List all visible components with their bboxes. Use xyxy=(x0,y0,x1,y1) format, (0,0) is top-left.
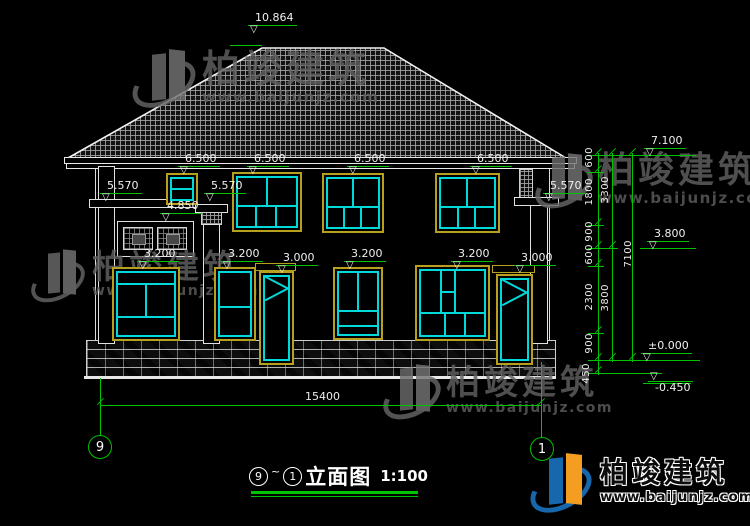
watermark-site-text: www.baijunjz.com xyxy=(202,88,379,106)
level-marker-f1: 3.200 ▽ xyxy=(344,248,386,270)
dim-line xyxy=(588,172,604,173)
dim-line xyxy=(598,153,599,375)
level-marker-icon: ▽ xyxy=(472,167,480,175)
door xyxy=(496,274,533,365)
watermark-logo-icon xyxy=(138,48,194,108)
watermark-logo-icon xyxy=(388,363,438,419)
dim-value: 600 xyxy=(585,147,595,168)
brand-logo: 柏竣建筑 www.baijunjz.com xyxy=(536,452,750,512)
grid-extension-line xyxy=(100,378,101,435)
title-scale: 1:100 xyxy=(380,467,428,485)
level-marker-f2: 6.500 ▽ xyxy=(178,153,220,175)
level-marker-icon: ▽ xyxy=(250,26,258,34)
window xyxy=(333,267,383,340)
dim-value: 15400 xyxy=(305,391,340,402)
level-marker-ground: ±0.000 ▽ xyxy=(641,340,692,362)
window xyxy=(112,267,180,341)
dim-value: 3800 xyxy=(601,284,611,311)
level-marker-eave: 7.100 ▽ xyxy=(644,135,686,157)
level-marker-porch: 5.570 ▽ xyxy=(100,180,142,202)
grid-bubble-9: 9 xyxy=(88,435,112,459)
title-name: 立面图 xyxy=(305,461,371,491)
level-marker-icon: ▽ xyxy=(346,262,354,270)
level-marker-icon: ▽ xyxy=(516,266,524,274)
level-marker-f2: 6.500 ▽ xyxy=(470,153,512,175)
dim-value: 900 xyxy=(585,221,595,242)
dim-value: 600 xyxy=(585,244,595,265)
level-marker-door: 3.000 ▽ xyxy=(276,252,318,274)
level-marker-icon: ▽ xyxy=(643,354,651,362)
level-marker-icon: ▽ xyxy=(349,167,357,175)
title-grid-end: 1 xyxy=(283,467,302,486)
window xyxy=(415,265,490,341)
level-marker-icon: ▽ xyxy=(278,266,286,274)
dim-value: 2300 xyxy=(585,283,595,310)
title-separator: ~ xyxy=(271,465,280,478)
dim-value: 450 xyxy=(582,363,592,384)
dim-line xyxy=(100,405,541,406)
dim-line xyxy=(612,153,613,362)
dim-value: 900 xyxy=(585,333,595,354)
dim-line xyxy=(588,266,604,267)
level-marker-door: 3.000 ▽ xyxy=(514,252,556,274)
level-marker-icon: ▽ xyxy=(139,262,147,270)
watermark-site-text: www.baijunjz.com xyxy=(446,400,613,417)
door xyxy=(259,271,294,365)
window xyxy=(435,173,500,233)
brand-logo-text: 柏竣建筑 xyxy=(600,459,750,487)
level-marker-icon: ▽ xyxy=(650,373,658,381)
level-marker-icon: ▽ xyxy=(646,149,654,157)
watermark-brand-text: 柏竣建筑 xyxy=(202,50,379,88)
level-marker-f2: 6.500 ▽ xyxy=(247,153,289,175)
watermark-top-center: 柏竣建筑 www.baijunjz.com xyxy=(138,48,379,108)
window xyxy=(322,173,384,233)
window xyxy=(214,267,256,341)
level-marker-icon: ▽ xyxy=(102,194,110,202)
title-underline xyxy=(251,491,418,494)
level-marker-f1: 3.200 ▽ xyxy=(451,248,493,270)
watermark-bottom-center: 柏竣建筑 www.baijunjz.com xyxy=(388,363,613,419)
ridge-extension-line xyxy=(230,45,262,46)
level-marker-f1: 3.200 ▽ xyxy=(221,248,263,270)
level-marker-icon: ▽ xyxy=(162,214,170,222)
level-marker-f2: 6.500 ▽ xyxy=(347,153,389,175)
level-marker-icon: ▽ xyxy=(223,262,231,270)
watermark-site-text: www.baijunjz.com xyxy=(598,189,750,207)
level-marker-porch: 5.570 ▽ xyxy=(204,180,246,202)
dim-value: 3300 xyxy=(601,176,611,203)
level-marker-icon: ▽ xyxy=(453,262,461,270)
dim-value: 1800 xyxy=(585,178,595,205)
level-marker-icon: ▽ xyxy=(545,194,553,202)
level-marker-railing: 4.850 ▽ xyxy=(160,200,202,222)
level-marker-f1: 3.200 ▽ xyxy=(137,248,179,270)
dim-value: 7100 xyxy=(624,240,634,267)
level-marker-ridge: 10.864 ▽ xyxy=(248,12,297,34)
drawing-title: 9 ~ 1 立面图 1:100 xyxy=(249,461,428,491)
grid-number: 9 xyxy=(96,440,104,455)
title-grid-start: 9 xyxy=(249,467,268,486)
brand-logo-icon xyxy=(536,452,590,512)
brand-logo-site: www.baijunjz.com xyxy=(600,489,750,505)
elevation-drawing-canvas: 柏竣建筑 www.baijunjz.com 柏竣建筑 www.baijunjz.… xyxy=(0,0,750,526)
level-marker-icon: ▽ xyxy=(649,242,657,250)
level-marker-porch: 5.570 ▽ xyxy=(543,180,585,202)
level-marker-icon: ▽ xyxy=(249,167,257,175)
level-marker-site: ▽ -0.450 xyxy=(648,373,693,395)
title-underline xyxy=(251,496,418,497)
watermark-brand-text: 柏竣建筑 xyxy=(598,153,750,189)
level-marker-second-floor: 3.800 ▽ xyxy=(647,228,689,250)
watermark-logo-icon xyxy=(36,248,84,302)
level-value: -0.450 xyxy=(648,381,693,395)
level-marker-icon: ▽ xyxy=(180,167,188,175)
level-marker-icon: ▽ xyxy=(206,194,214,202)
